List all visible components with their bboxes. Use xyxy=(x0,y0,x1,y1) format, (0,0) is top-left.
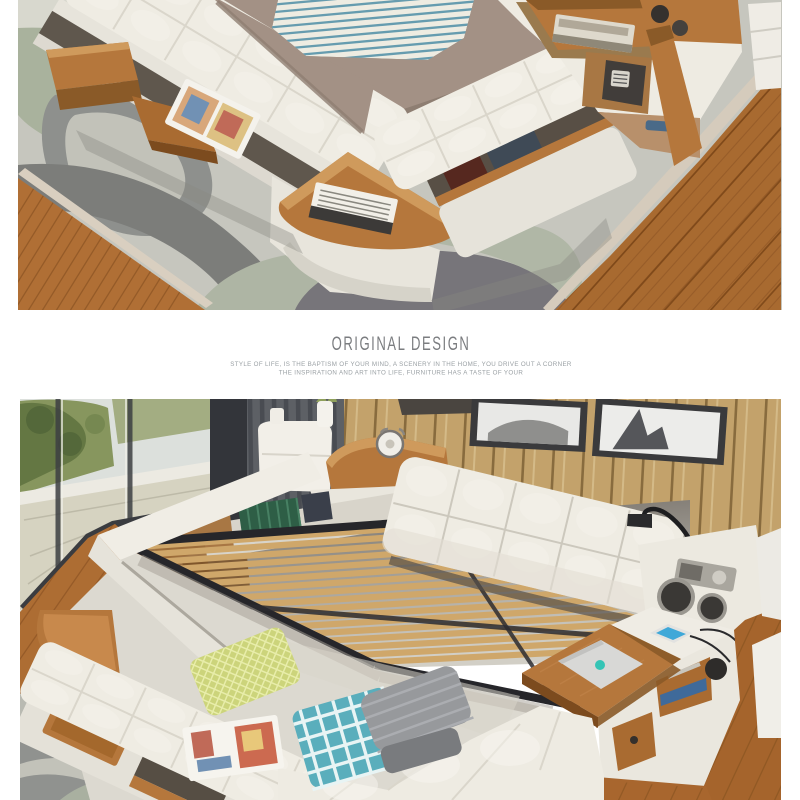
svg-text:THE INSPIRATION AND ART INTO L: THE INSPIRATION AND ART INTO LIFE, FURNI… xyxy=(279,370,524,377)
svg-text:ORIGINAL DESIGN: ORIGINAL DESIGN xyxy=(332,334,471,355)
svg-text:STYLE OF LIFE, IS THE BAPTISM: STYLE OF LIFE, IS THE BAPTISM OF YOUR MI… xyxy=(230,361,572,368)
